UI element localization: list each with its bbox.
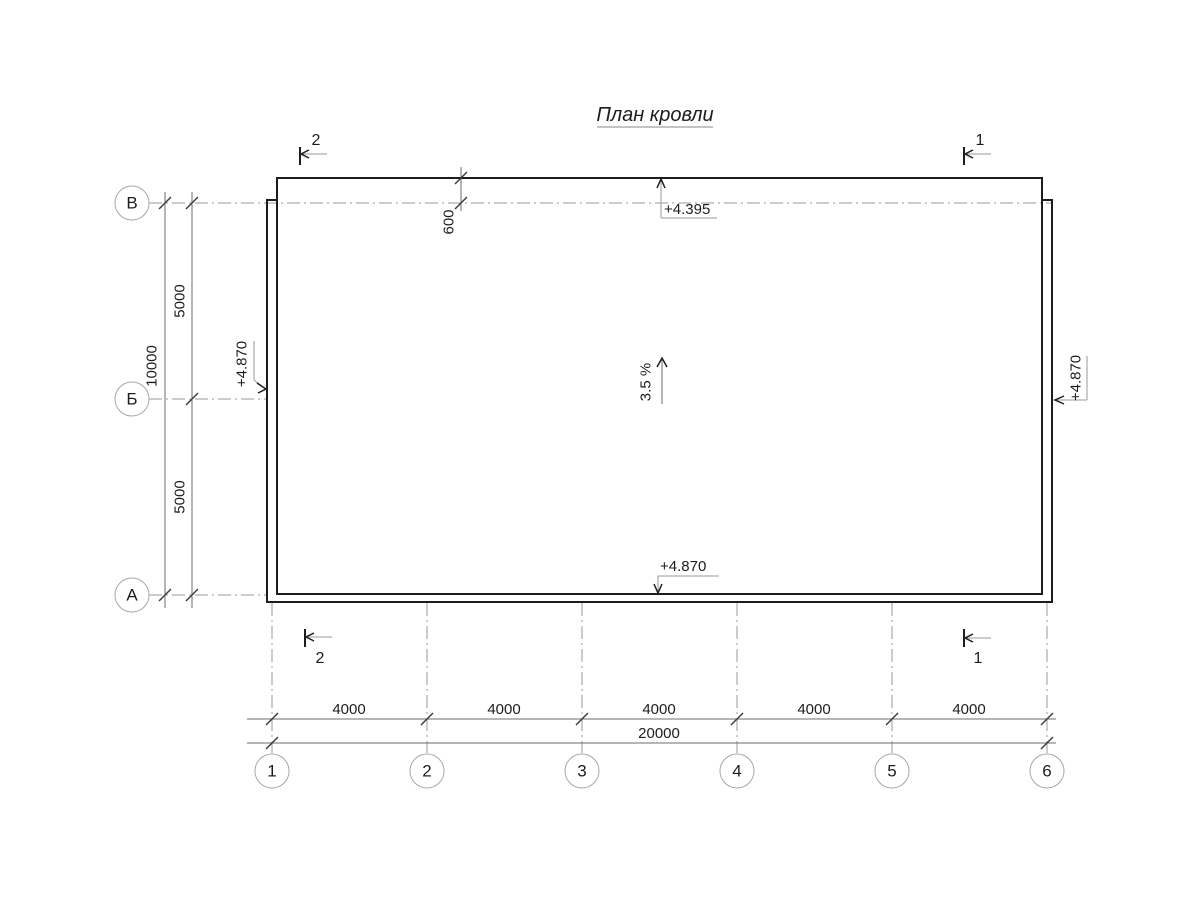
- dim-text-row-spacing-2: 5000: [172, 480, 189, 513]
- elevation-mark-right: +4.870: [1055, 355, 1087, 404]
- axis-label-row-B: В: [126, 194, 137, 213]
- elevation-mark-left: +4.870: [234, 341, 267, 393]
- section-mark-1-bottom: 1: [964, 629, 991, 667]
- dim-text-col-spacing-4: 4000: [797, 701, 830, 718]
- dim-text-row-total: 10000: [144, 345, 161, 387]
- dimension-ticks: [159, 172, 1053, 749]
- dimension-lines: [165, 167, 1056, 743]
- dim-text-col-total: 20000: [638, 725, 680, 742]
- dim-text-row-spacing-1: 5000: [172, 284, 189, 317]
- section-label: 2: [316, 650, 325, 667]
- drawing-sheet: План кровли: [0, 0, 1200, 900]
- dim-text-eave-offset: 600: [441, 209, 458, 234]
- axis-label-col-4: 4: [732, 762, 741, 781]
- axis-label-row-B2: Б: [126, 390, 137, 409]
- dim-text-col-spacing-5: 4000: [952, 701, 985, 718]
- row-axis-bubbles: В Б А: [115, 186, 149, 612]
- axis-label-col-1: 1: [267, 762, 276, 781]
- roof-plan-drawing: План кровли: [0, 0, 1200, 900]
- elevation-arrow-right-icon: [257, 383, 266, 393]
- axis-label-col-2: 2: [422, 762, 431, 781]
- column-axis-bubbles: 1 2 3 4 5 6: [255, 754, 1064, 788]
- axis-label-col-5: 5: [887, 762, 896, 781]
- axis-label-col-3: 3: [577, 762, 586, 781]
- roof-parapet-edge: [267, 200, 1052, 602]
- axis-label-row-A: А: [126, 586, 138, 605]
- roof-slab-edge: [277, 178, 1042, 594]
- elevation-value-top: +4.395: [664, 201, 710, 218]
- section-mark-2-bottom: 2: [305, 629, 332, 667]
- section-label: 1: [976, 132, 985, 149]
- elevation-mark-bottom: +4.870: [654, 558, 719, 593]
- section-label: 2: [312, 132, 321, 149]
- section-mark-1-top: 1: [964, 132, 991, 165]
- roof-outline: [267, 178, 1052, 602]
- axis-label-col-6: 6: [1042, 762, 1051, 781]
- elevation-value-left: +4.870: [234, 341, 251, 387]
- section-mark-2-top: 2: [300, 132, 327, 165]
- grid-axis-lines: [149, 203, 1052, 753]
- slope-value: 3.5 %: [638, 363, 655, 401]
- dim-text-col-spacing-3: 4000: [642, 701, 675, 718]
- elevation-value-right: +4.870: [1068, 355, 1085, 401]
- elevation-mark-top: +4.395: [657, 179, 717, 218]
- section-label: 1: [974, 650, 983, 667]
- dim-text-col-spacing-1: 4000: [332, 701, 365, 718]
- slope-mark: 3.5 %: [638, 358, 668, 404]
- drawing-title: План кровли: [596, 104, 713, 126]
- elevation-value-bottom: +4.870: [660, 558, 706, 575]
- dim-text-col-spacing-2: 4000: [487, 701, 520, 718]
